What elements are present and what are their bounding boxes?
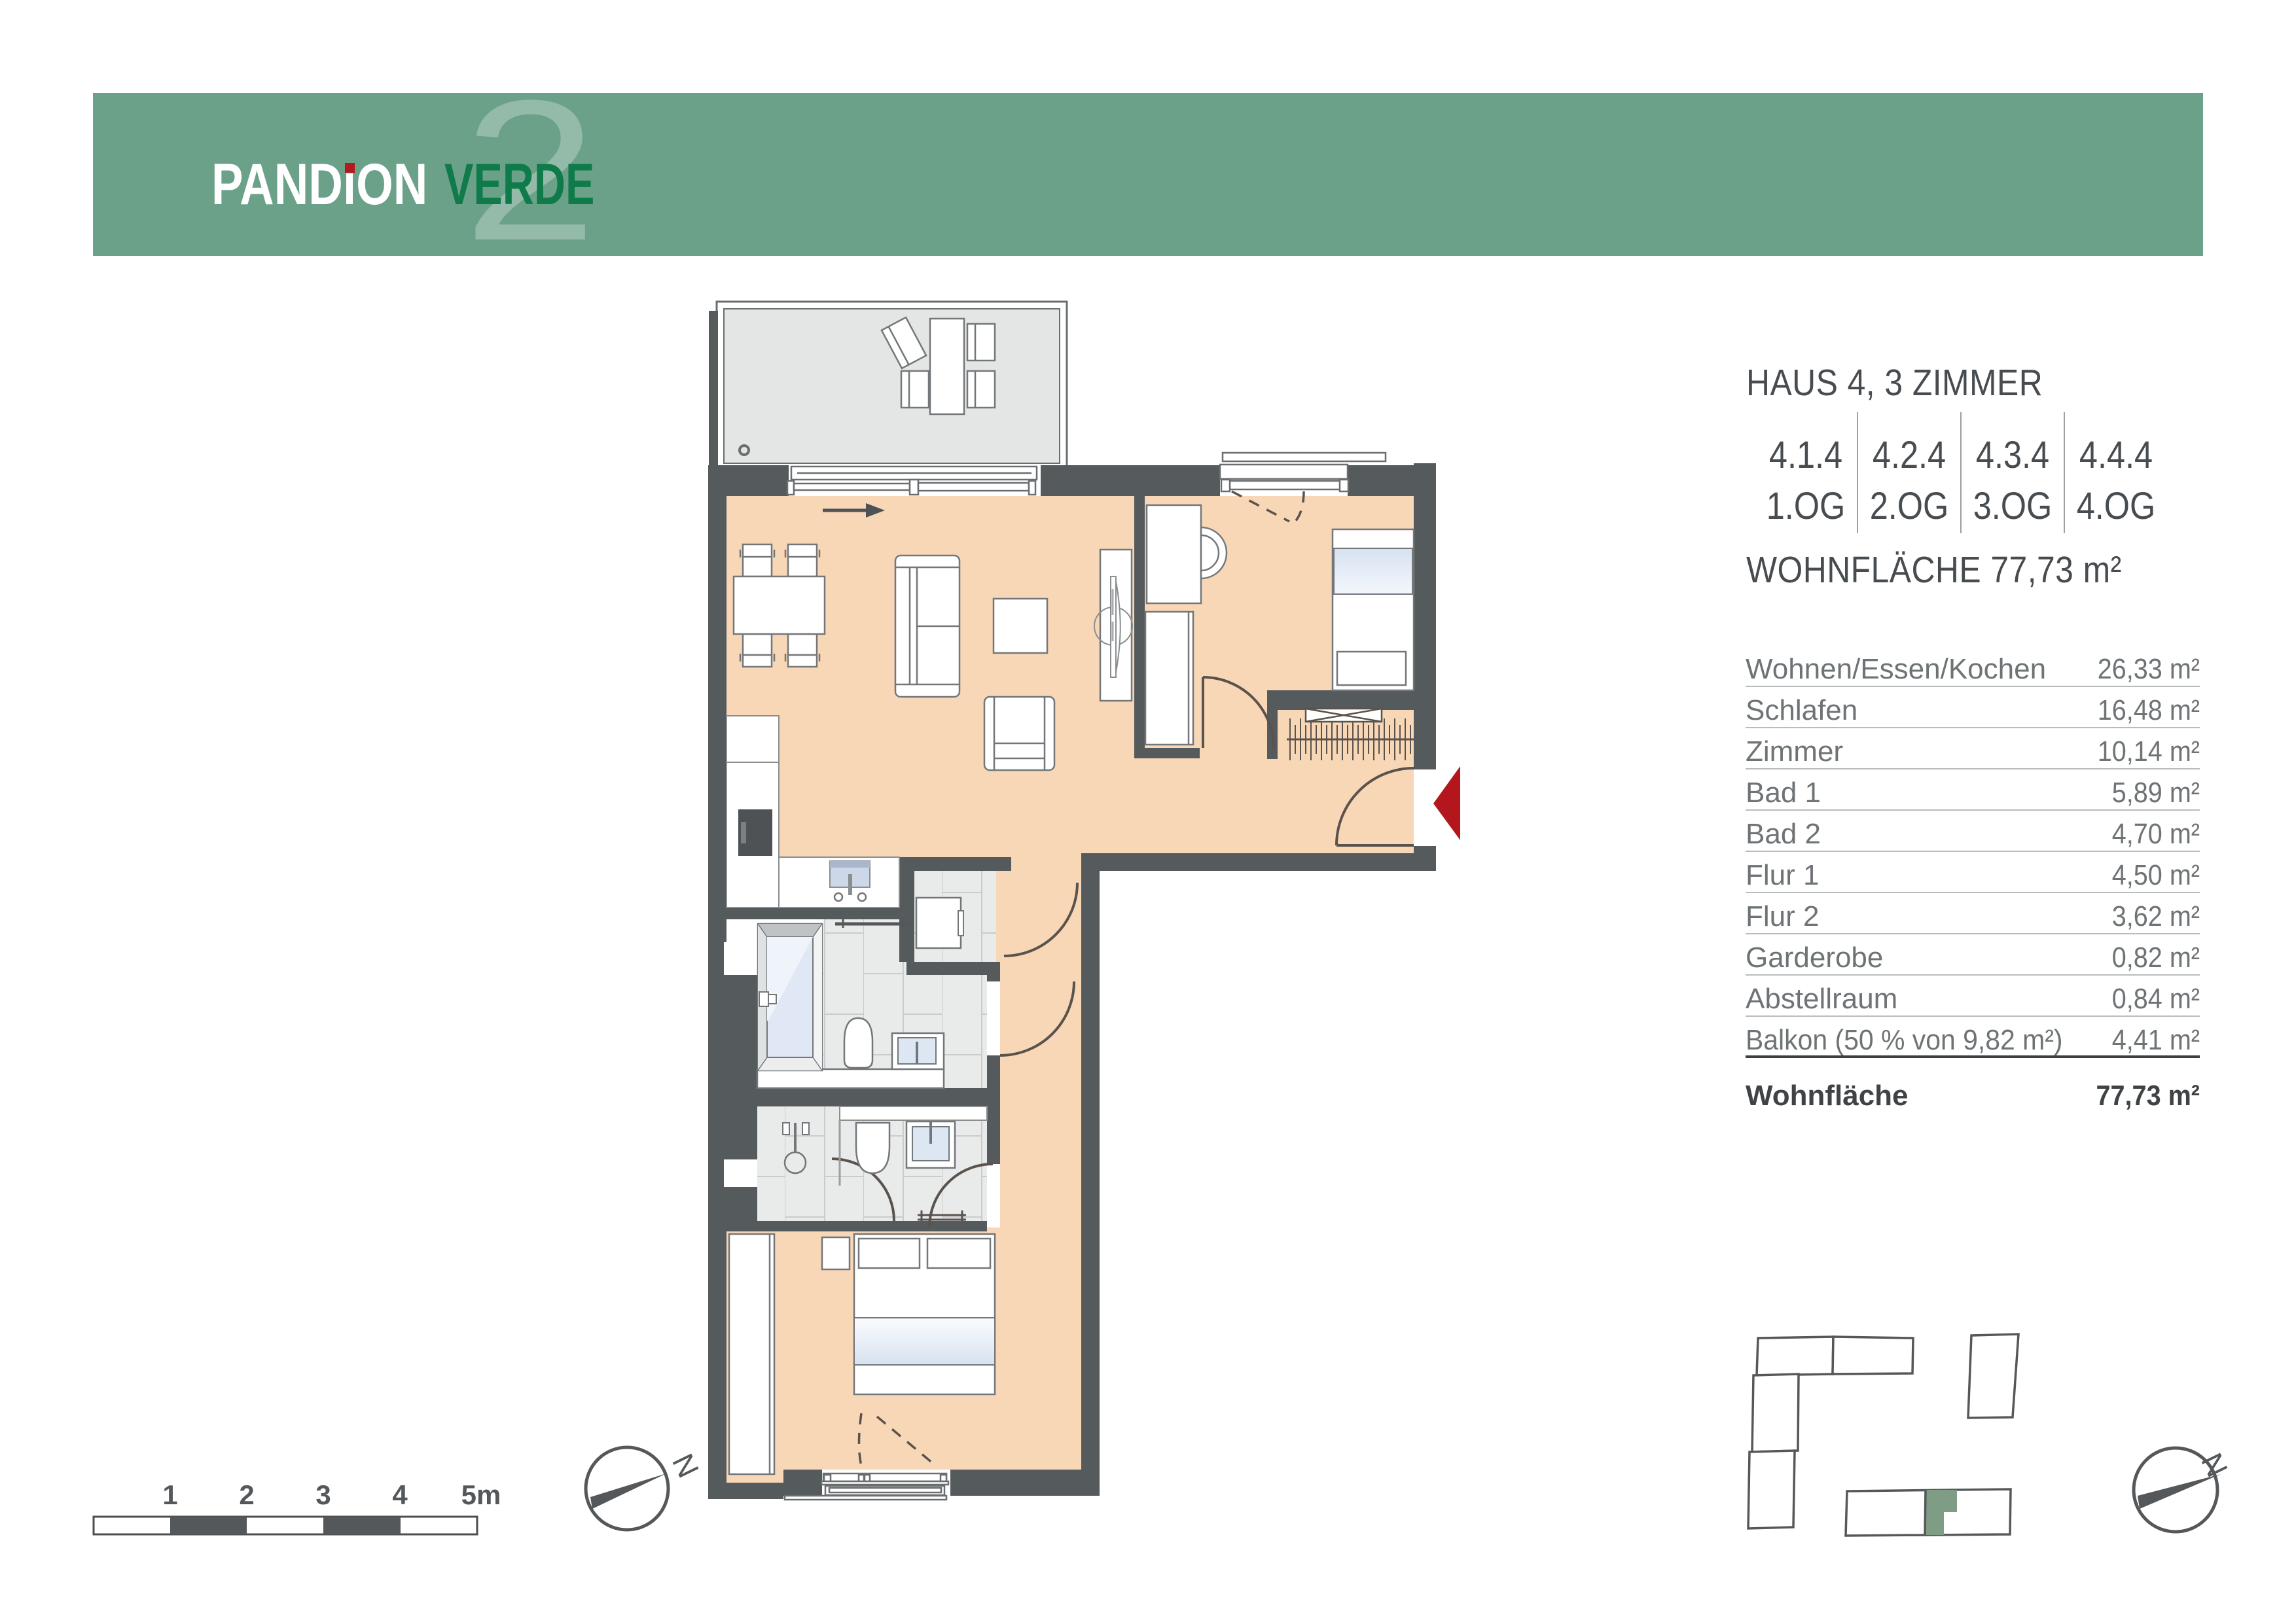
svg-text:4: 4 — [392, 1479, 408, 1510]
svg-text:2: 2 — [239, 1479, 254, 1510]
svg-text:5m: 5m — [461, 1479, 501, 1510]
svg-text:1: 1 — [162, 1479, 177, 1510]
svg-text:N: N — [666, 1449, 706, 1483]
svg-text:N: N — [2195, 1448, 2234, 1483]
svg-text:3: 3 — [315, 1479, 331, 1510]
